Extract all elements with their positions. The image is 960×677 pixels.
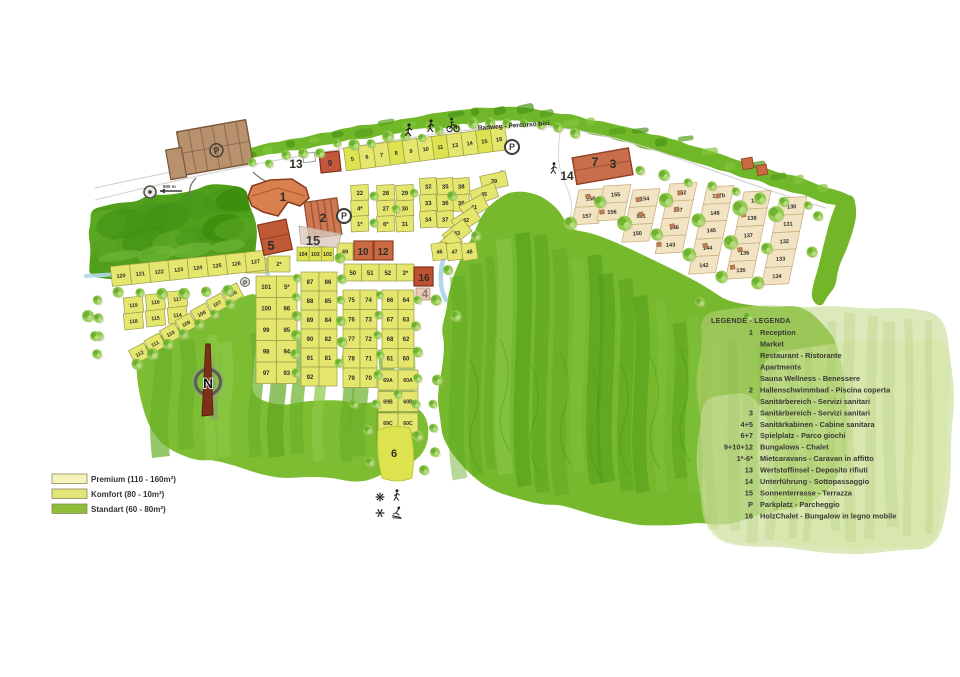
svg-text:3: 3 bbox=[749, 408, 753, 417]
svg-text:HolzChalet - Bungalow in legno: HolzChalet - Bungalow in legno mobile bbox=[760, 511, 896, 520]
svg-text:115: 115 bbox=[151, 316, 160, 323]
svg-text:68: 68 bbox=[387, 337, 394, 343]
svg-text:Standart (60 - 80m²): Standart (60 - 80m²) bbox=[91, 505, 166, 514]
svg-text:52: 52 bbox=[384, 271, 391, 277]
svg-text:75: 75 bbox=[348, 298, 355, 304]
svg-text:71: 71 bbox=[365, 357, 372, 363]
svg-text:Reception: Reception bbox=[760, 328, 796, 337]
svg-text:LEGENDE - LEGENDA: LEGENDE - LEGENDA bbox=[711, 316, 791, 325]
svg-text:Hallenschwimmbad - Piscina cop: Hallenschwimmbad - Piscina coperta bbox=[760, 385, 891, 394]
svg-text:1*-6*: 1*-6* bbox=[737, 454, 754, 463]
svg-text:35: 35 bbox=[442, 184, 450, 190]
svg-text:63: 63 bbox=[403, 318, 410, 324]
svg-text:Market: Market bbox=[760, 340, 784, 349]
svg-text:60: 60 bbox=[403, 357, 410, 363]
svg-text:46: 46 bbox=[436, 249, 443, 256]
svg-text:69A: 69A bbox=[383, 378, 393, 384]
svg-text:66: 66 bbox=[387, 298, 394, 304]
svg-text:4*: 4* bbox=[357, 206, 364, 212]
svg-text:133: 133 bbox=[776, 256, 786, 262]
svg-text:148: 148 bbox=[710, 211, 720, 217]
svg-text:2: 2 bbox=[320, 211, 327, 225]
svg-text:157: 157 bbox=[582, 214, 592, 220]
svg-text:138: 138 bbox=[747, 216, 757, 222]
svg-text:Premium (110 - 160m²): Premium (110 - 160m²) bbox=[91, 475, 176, 484]
svg-text:79: 79 bbox=[348, 376, 355, 382]
svg-text:104: 104 bbox=[299, 252, 308, 258]
svg-text:119: 119 bbox=[129, 303, 138, 310]
svg-text:Sanitärbereich - Servizi sanit: Sanitärbereich - Servizi sanitari bbox=[760, 397, 870, 406]
svg-text:10: 10 bbox=[357, 247, 369, 258]
svg-text:14: 14 bbox=[560, 169, 574, 183]
svg-text:91: 91 bbox=[307, 356, 314, 362]
svg-text:P: P bbox=[748, 500, 753, 509]
svg-text:156: 156 bbox=[607, 210, 617, 216]
svg-text:118: 118 bbox=[129, 319, 138, 326]
svg-text:15: 15 bbox=[745, 489, 753, 498]
svg-text:16: 16 bbox=[418, 273, 430, 284]
svg-text:86: 86 bbox=[325, 280, 332, 286]
svg-text:13: 13 bbox=[452, 143, 459, 150]
svg-text:81: 81 bbox=[325, 356, 332, 362]
svg-text:Restaurant - Ristorante: Restaurant - Ristorante bbox=[760, 351, 842, 360]
svg-text:P: P bbox=[243, 281, 247, 287]
svg-text:73: 73 bbox=[365, 318, 372, 324]
svg-text:98: 98 bbox=[263, 350, 270, 356]
svg-text:64: 64 bbox=[403, 298, 410, 304]
svg-text:5: 5 bbox=[267, 238, 274, 253]
svg-text:101: 101 bbox=[261, 285, 272, 291]
svg-text:4+5: 4+5 bbox=[740, 420, 753, 429]
svg-text:126: 126 bbox=[232, 261, 242, 268]
svg-text:103: 103 bbox=[311, 252, 320, 258]
svg-text:85: 85 bbox=[325, 299, 332, 305]
svg-text:82: 82 bbox=[325, 337, 332, 343]
svg-text:100: 100 bbox=[261, 307, 272, 313]
svg-text:15: 15 bbox=[306, 233, 320, 248]
svg-text:7: 7 bbox=[592, 155, 599, 169]
svg-text:142: 142 bbox=[699, 263, 709, 269]
svg-text:13: 13 bbox=[289, 157, 303, 171]
svg-text:Spielplatz - Parco giochi: Spielplatz - Parco giochi bbox=[760, 431, 845, 440]
svg-text:92: 92 bbox=[307, 375, 314, 381]
svg-text:32: 32 bbox=[425, 184, 433, 190]
svg-text:Sauna Wellness - Benessere: Sauna Wellness - Benessere bbox=[760, 374, 860, 383]
svg-text:74: 74 bbox=[365, 298, 372, 304]
svg-text:121: 121 bbox=[136, 271, 146, 278]
svg-text:22: 22 bbox=[356, 191, 364, 197]
svg-text:69C: 69C bbox=[383, 421, 393, 427]
svg-text:6*: 6* bbox=[383, 222, 390, 228]
svg-text:Sonnenterrasse - Terrazza: Sonnenterrasse - Terrazza bbox=[760, 489, 853, 498]
svg-text:120: 120 bbox=[116, 273, 126, 280]
svg-text:Mietcaravans - Caravan in affi: Mietcaravans - Caravan in affitto bbox=[760, 454, 874, 463]
svg-text:116: 116 bbox=[151, 300, 160, 307]
svg-text:155: 155 bbox=[611, 192, 621, 198]
svg-text:12: 12 bbox=[377, 247, 389, 258]
svg-text:36: 36 bbox=[442, 201, 450, 207]
svg-text:61: 61 bbox=[387, 357, 394, 363]
svg-text:5*: 5* bbox=[284, 285, 290, 291]
svg-text:15: 15 bbox=[481, 139, 488, 146]
svg-text:131: 131 bbox=[783, 222, 793, 228]
svg-text:30: 30 bbox=[401, 206, 409, 212]
svg-text:127: 127 bbox=[251, 259, 261, 266]
svg-text:89: 89 bbox=[307, 318, 314, 324]
svg-text:137: 137 bbox=[743, 233, 753, 239]
svg-text:3: 3 bbox=[610, 157, 617, 171]
svg-text:N: N bbox=[203, 375, 213, 391]
svg-text:33: 33 bbox=[425, 201, 433, 207]
svg-text:51: 51 bbox=[367, 271, 374, 277]
svg-text:1: 1 bbox=[280, 190, 287, 204]
svg-text:145: 145 bbox=[706, 228, 716, 234]
svg-text:154: 154 bbox=[640, 196, 651, 203]
svg-text:97: 97 bbox=[263, 371, 270, 377]
svg-text:2: 2 bbox=[749, 385, 753, 394]
svg-text:95: 95 bbox=[283, 328, 290, 334]
svg-text:13: 13 bbox=[745, 466, 753, 475]
svg-text:6: 6 bbox=[391, 448, 397, 460]
svg-text:122: 122 bbox=[155, 269, 165, 276]
svg-text:125: 125 bbox=[212, 263, 222, 270]
svg-text:78: 78 bbox=[348, 357, 355, 363]
svg-text:60C: 60C bbox=[403, 421, 413, 427]
svg-text:99: 99 bbox=[263, 328, 270, 334]
svg-text:96: 96 bbox=[283, 307, 290, 313]
svg-text:6+7: 6+7 bbox=[740, 431, 753, 440]
svg-text:11: 11 bbox=[437, 145, 444, 152]
svg-text:47: 47 bbox=[451, 249, 458, 256]
svg-text:10: 10 bbox=[422, 147, 429, 154]
svg-text:69B: 69B bbox=[383, 400, 393, 406]
svg-text:124: 124 bbox=[193, 265, 203, 272]
svg-text:93: 93 bbox=[283, 371, 290, 377]
svg-text:34: 34 bbox=[425, 217, 433, 223]
svg-text:Sanitärbereich - Servizi sanit: Sanitärbereich - Servizi sanitari bbox=[760, 408, 870, 417]
svg-text:16: 16 bbox=[745, 511, 753, 520]
svg-text:76: 76 bbox=[348, 318, 355, 324]
svg-text:150: 150 bbox=[632, 231, 642, 237]
svg-text:P: P bbox=[341, 211, 347, 221]
svg-text:37: 37 bbox=[442, 217, 450, 223]
svg-text:9+10+12: 9+10+12 bbox=[724, 443, 753, 452]
svg-text:77: 77 bbox=[348, 337, 355, 343]
svg-text:9: 9 bbox=[328, 159, 333, 168]
svg-text:14: 14 bbox=[745, 477, 754, 486]
svg-text:3*: 3* bbox=[402, 271, 408, 277]
svg-text:18: 18 bbox=[496, 137, 503, 144]
svg-text:Parkplatz - Parcheggio: Parkplatz - Parcheggio bbox=[760, 500, 840, 509]
svg-text:143: 143 bbox=[666, 242, 676, 248]
svg-text:60A: 60A bbox=[403, 378, 413, 384]
svg-text:Bungalows - Chalet: Bungalows - Chalet bbox=[760, 443, 829, 452]
svg-text:90: 90 bbox=[307, 337, 314, 343]
svg-text:Unterführung - Sottopassaggio: Unterführung - Sottopassaggio bbox=[760, 477, 870, 486]
svg-text:134: 134 bbox=[772, 274, 783, 281]
svg-text:123: 123 bbox=[174, 267, 184, 274]
svg-text:48: 48 bbox=[466, 249, 473, 256]
svg-text:1*: 1* bbox=[357, 222, 364, 228]
svg-text:1: 1 bbox=[749, 328, 753, 337]
svg-text:135: 135 bbox=[736, 268, 746, 274]
svg-text:88: 88 bbox=[307, 299, 314, 305]
svg-text:28: 28 bbox=[382, 191, 390, 197]
svg-text:800 m: 800 m bbox=[163, 184, 176, 189]
svg-text:2*: 2* bbox=[276, 262, 282, 268]
svg-text:102: 102 bbox=[323, 252, 332, 258]
svg-text:84: 84 bbox=[325, 318, 332, 324]
svg-text:31: 31 bbox=[401, 222, 409, 228]
svg-text:132: 132 bbox=[779, 239, 789, 245]
svg-text:94: 94 bbox=[283, 350, 290, 356]
svg-text:29: 29 bbox=[401, 191, 409, 197]
svg-text:72: 72 bbox=[365, 337, 372, 343]
svg-text:Komfort (80 - 10m²): Komfort (80 - 10m²) bbox=[91, 490, 165, 499]
svg-text:P: P bbox=[509, 142, 515, 152]
svg-text:67: 67 bbox=[387, 318, 394, 324]
svg-text:Apartments: Apartments bbox=[760, 363, 801, 372]
svg-text:38: 38 bbox=[458, 184, 466, 190]
svg-text:50: 50 bbox=[349, 271, 356, 277]
svg-text:62: 62 bbox=[403, 337, 410, 343]
svg-text:70: 70 bbox=[365, 376, 372, 382]
svg-text:87: 87 bbox=[307, 280, 314, 286]
svg-text:27: 27 bbox=[382, 206, 390, 212]
svg-text:Wertstoffinsel - Deposito rifi: Wertstoffinsel - Deposito rifiuti bbox=[760, 466, 868, 475]
svg-text:Sanitärkabinen - Cabine sanita: Sanitärkabinen - Cabine sanitara bbox=[760, 420, 875, 429]
